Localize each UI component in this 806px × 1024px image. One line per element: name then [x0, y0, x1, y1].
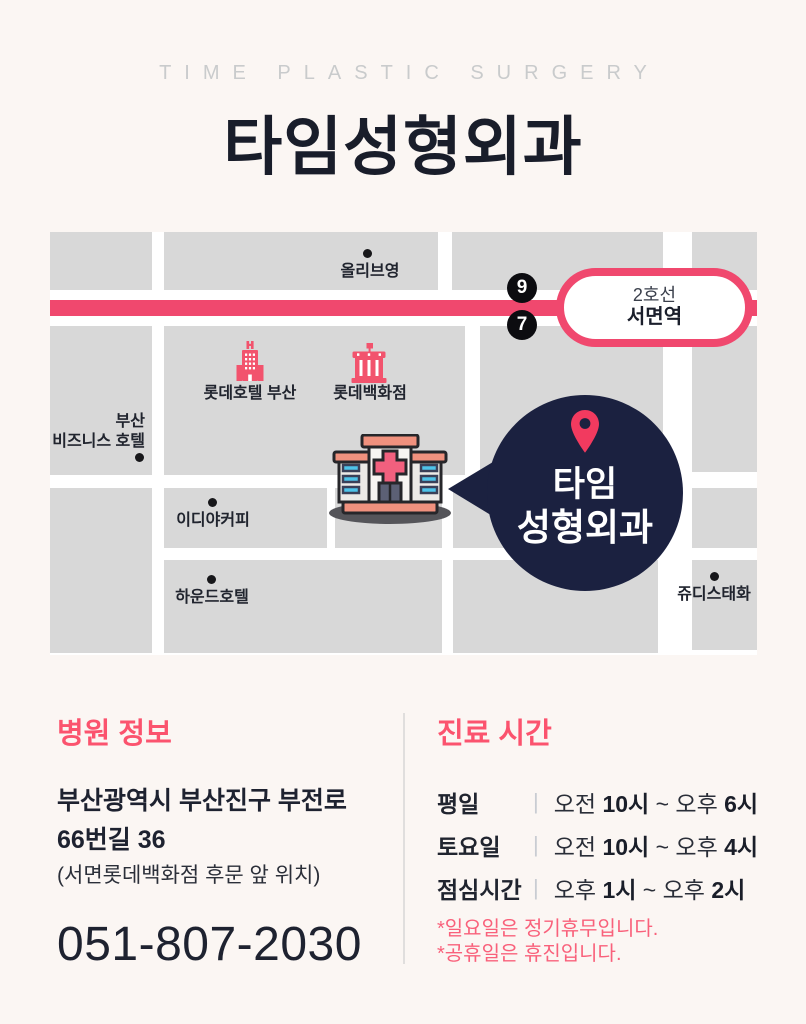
bubble-line2: 성형외과 [517, 506, 653, 549]
poi-label-lotte-dept: 롯데백화점 [333, 384, 407, 403]
poi-dot-busan-business-hotel [135, 453, 144, 462]
poi-dot-judies [710, 572, 719, 581]
schedule-row-label: 평일 [437, 785, 533, 819]
clinic-callout-bubble: 타임 성형외과 [487, 395, 683, 591]
poi-label-hound-hotel: 하운드호텔 [175, 588, 249, 607]
poi-label-ediya-coffee: 이디야커피 [176, 511, 250, 530]
schedule-row-lunch: 점심시간 | 오후 1시 ~ 오후 2시 [437, 866, 782, 909]
schedule-row-label: 토요일 [437, 828, 533, 862]
schedule-notes: *일요일은 정기휴무입니다. *공휴일은 휴진입니다. [437, 917, 782, 967]
map-block [164, 232, 438, 290]
note-sunday-closed: *일요일은 정기휴무입니다. [437, 917, 782, 942]
map-block [692, 560, 757, 650]
bubble-clinic-name: 타임 성형외과 [517, 465, 653, 549]
schedule-row-weekday: 평일 | 오전 10시 ~ 오후 6시 [437, 780, 782, 823]
hotel-building-icon [232, 341, 268, 385]
clinic-building-illustration [326, 434, 454, 526]
map-block [692, 326, 757, 472]
clinic-info-poster: TIME PLASTIC SURGERY 타임성형외과 9 7 2호선 서면역 [0, 0, 806, 1024]
station-line-label: 2호선 [633, 285, 676, 306]
poi-label-oliveyoung: 올리브영 [341, 262, 400, 281]
map-block [692, 488, 757, 548]
schedule-separator: | [533, 789, 539, 815]
phone-number: 051-807-2030 [57, 917, 392, 972]
eyebrow-text: TIME PLASTIC SURGERY [0, 62, 806, 85]
bubble-line1: 타임 [517, 465, 653, 506]
exit-9-badge: 9 [507, 273, 537, 303]
hospital-info-heading: 병원 정보 [57, 716, 392, 752]
address-line1: 부산광역시 부산진구 부전로 [57, 782, 392, 821]
note-holiday-closed: *공휴일은 휴진입니다. [437, 942, 782, 967]
address-text: 부산광역시 부산진구 부전로 66번길 36 [57, 782, 392, 860]
map-block [50, 232, 152, 290]
poi-label-busan-business-hotel: 부산 비즈니스 호텔 [52, 412, 145, 452]
schedule-row-time: 오전 10시 ~ 오후 4시 [554, 828, 758, 862]
address-line2: 66번길 36 [57, 821, 392, 860]
poi-dot-oliveyoung [363, 249, 372, 258]
poi-dot-hound-hotel [207, 575, 216, 584]
station-name-label: 서면역 [627, 306, 682, 330]
address-note: (서면롯데백화점 후문 앞 위치) [57, 863, 392, 889]
schedule-row-time: 오후 1시 ~ 오후 2시 [554, 871, 746, 905]
schedule-row-time: 오전 10시 ~ 오후 6시 [554, 785, 758, 819]
schedule-row-label: 점심시간 [437, 871, 533, 905]
hospital-info-column: 병원 정보 부산광역시 부산진구 부전로 66번길 36 (서면롯데백화점 후문… [57, 716, 392, 972]
poi-dot-ediya [208, 498, 217, 507]
column-divider [403, 713, 405, 964]
schedule-separator: | [533, 832, 539, 858]
seomyeon-station-pill: 2호선 서면역 [556, 268, 753, 347]
map-block [50, 488, 152, 653]
exit-7-badge: 7 [507, 310, 537, 340]
schedule-separator: | [533, 875, 539, 901]
poi-label-judies-taehwa: 쥬디스태화 [677, 585, 751, 604]
location-map: 9 7 2호선 서면역 올리브영 부산 비즈니스 호텔 이디야커피 하운드호텔 … [50, 232, 757, 655]
poi-label-lotte-hotel: 롯데호텔 부산 [204, 384, 297, 403]
location-pin-icon [570, 409, 600, 455]
page-title: 타임성형외과 [0, 96, 806, 188]
schedule-row-saturday: 토요일 | 오전 10시 ~ 오후 4시 [437, 823, 782, 866]
department-store-icon [349, 343, 389, 383]
hours-heading: 진료 시간 [437, 716, 782, 752]
schedule-table: 평일 | 오전 10시 ~ 오후 6시 토요일 | 오전 10시 ~ 오후 4시… [437, 780, 782, 909]
hours-column: 진료 시간 평일 | 오전 10시 ~ 오후 6시 토요일 | 오전 10시 ~… [437, 716, 782, 967]
